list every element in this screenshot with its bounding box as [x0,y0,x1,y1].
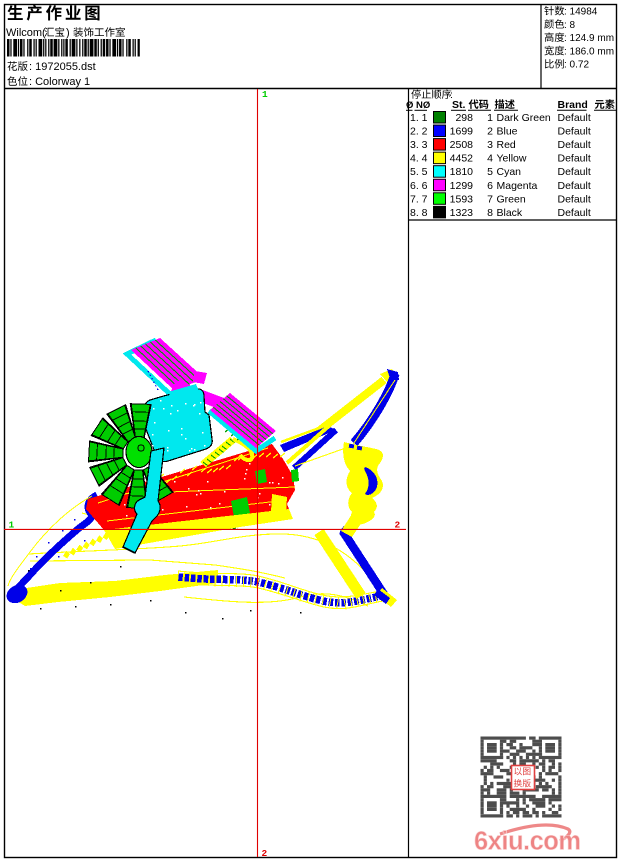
svg-text:1699: 1699 [450,126,474,138]
svg-text:4: 4 [487,153,493,165]
svg-text:2508: 2508 [450,139,474,151]
svg-text:Black: Black [497,207,523,219]
svg-text:: 0.72: : 0.72 [564,60,589,71]
svg-text:Brand: Brand [558,99,588,111]
svg-text:1: 1 [9,520,15,531]
svg-text:6xiu.com: 6xiu.com [474,828,581,856]
svg-text:6. 6: 6. 6 [410,180,428,192]
svg-text:2. 2: 2. 2 [410,126,428,138]
svg-text:Red: Red [497,139,516,151]
svg-text:5: 5 [487,166,493,178]
svg-text:1323: 1323 [450,207,474,219]
svg-text:): ) [66,27,70,39]
svg-text:8: 8 [487,207,493,219]
svg-text:3. 3: 3. 3 [410,139,428,151]
svg-text:3: 3 [487,139,493,151]
svg-text:: 1972055.dst: : 1972055.dst [29,61,96,73]
svg-text:Green: Green [497,193,526,205]
svg-text:: 8: : 8 [564,20,576,31]
svg-text:: 14984: : 14984 [564,7,598,18]
svg-text:2: 2 [395,520,401,531]
svg-text:St.: St. [452,99,466,111]
svg-text:298: 298 [455,112,473,124]
svg-text:1810: 1810 [450,166,474,178]
svg-text:Default: Default [558,153,591,165]
svg-text:NØ: NØ [416,100,430,111]
svg-text:1: 1 [262,89,268,100]
svg-text:1: 1 [487,112,493,124]
svg-text:: 124.9 mm: : 124.9 mm [564,33,614,44]
svg-text:Magenta: Magenta [497,180,538,192]
svg-text:Wilcom(: Wilcom( [6,27,46,39]
svg-text:5. 5: 5. 5 [410,166,428,178]
svg-text:Default: Default [558,112,591,124]
svg-text:: 186.0 mm: : 186.0 mm [564,46,614,57]
svg-text:1299: 1299 [450,180,474,192]
svg-text:Default: Default [558,180,591,192]
svg-text:Default: Default [558,193,591,205]
svg-text:2: 2 [487,126,493,138]
svg-text:Default: Default [558,207,591,219]
svg-text:Blue: Blue [497,126,518,138]
svg-text:4. 4: 4. 4 [410,153,428,165]
svg-text:Cyan: Cyan [497,166,522,178]
svg-text:1593: 1593 [450,193,474,205]
svg-text:Ø: Ø [406,100,413,111]
svg-text:4452: 4452 [450,153,474,165]
svg-text:1. 1: 1. 1 [410,112,428,124]
svg-text:6: 6 [487,180,493,192]
svg-text:Dark Green: Dark Green [497,112,551,124]
svg-text:Default: Default [558,126,591,138]
svg-text:8. 8: 8. 8 [410,207,428,219]
svg-text:Yellow: Yellow [497,153,527,165]
svg-text:2: 2 [262,848,268,859]
svg-text:Default: Default [558,139,591,151]
svg-text:7. 7: 7. 7 [410,193,428,205]
svg-text:7: 7 [487,193,493,205]
svg-text:: Colorway 1: : Colorway 1 [29,76,90,88]
svg-text:Default: Default [558,166,591,178]
